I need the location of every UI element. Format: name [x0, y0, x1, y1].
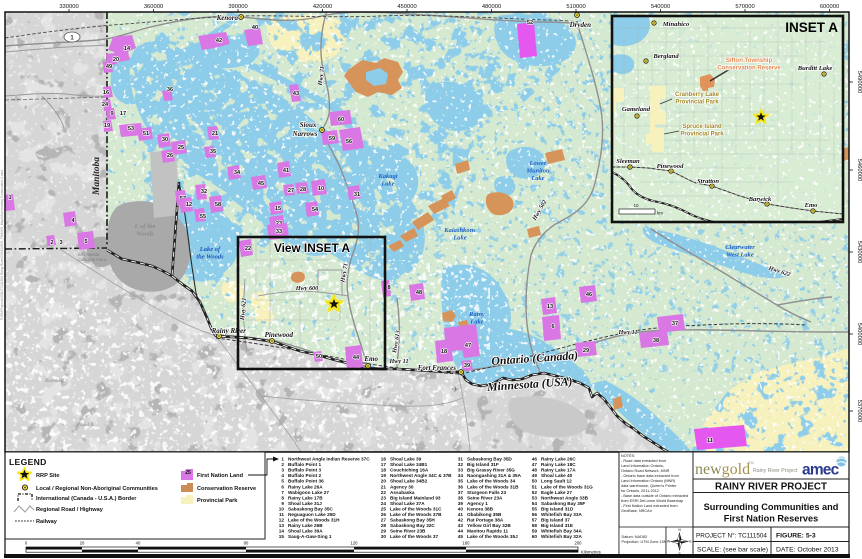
svg-text:Rainy: Rainy: [468, 311, 485, 318]
svg-text:FIGURE: 5-3: FIGURE: 5-3: [776, 533, 816, 540]
svg-text:10: 10: [633, 203, 639, 208]
svg-text:51: 51: [532, 484, 538, 489]
svg-text:33: 33: [276, 229, 282, 235]
svg-text:Lake of the Woods 37: Lake of the Woods 37: [390, 534, 438, 539]
svg-text:Land Information Ontario (MNR): Land Information Ontario (MNR): [621, 479, 676, 483]
svg-text:INSET A: INSET A: [785, 20, 838, 35]
svg-text:Long Sault 12: Long Sault 12: [541, 479, 572, 484]
svg-text:Narrows: Narrows: [292, 130, 318, 138]
svg-text:Lake of the Woods 31B: Lake of the Woods 31B: [467, 484, 519, 489]
svg-text:Provincial Park: Provincial Park: [680, 132, 724, 138]
svg-text:Big Island 31D: Big Island 31D: [541, 506, 574, 511]
svg-text:55: 55: [532, 506, 538, 511]
svg-text:Lower: Lower: [529, 160, 547, 167]
svg-text:52: 52: [527, 20, 533, 26]
svg-text:Rapid R.: Rapid R.: [76, 423, 95, 428]
svg-text:50: 50: [316, 354, 322, 360]
svg-text:42: 42: [216, 38, 222, 44]
svg-text:43: 43: [458, 523, 464, 528]
svg-text:18: 18: [441, 349, 447, 355]
svg-text:21: 21: [381, 484, 387, 489]
svg-text:Sabaskong Bay 35F: Sabaskong Bay 35F: [541, 501, 585, 506]
svg-text:12: 12: [279, 518, 285, 523]
svg-text:SCALE: (see bar scale): SCALE: (see bar scale): [697, 547, 768, 554]
svg-text:Kenora: Kenora: [216, 14, 239, 22]
svg-text:2: 2: [50, 240, 53, 246]
svg-text:5370000: 5370000: [856, 400, 862, 423]
svg-text:Couchiching 16A: Couchiching 16A: [390, 468, 429, 473]
svg-text:from ESRI DeLorme World Basema: from ESRI DeLorme World Basemap: [621, 499, 683, 503]
svg-text:Lake: Lake: [469, 319, 483, 326]
svg-text:Lake of: Lake of: [199, 246, 221, 253]
svg-text:27: 27: [381, 518, 387, 523]
svg-text:Sioux: Sioux: [300, 121, 317, 129]
svg-text:53: 53: [128, 126, 134, 132]
svg-text:Projection: UTM Zone 15N: Projection: UTM Zone 15N: [622, 540, 667, 544]
svg-text:Fort Frances: Fort Frances: [418, 364, 457, 372]
svg-text:International (Canada - U.S.A.: International (Canada - U.S.A.) Border: [36, 496, 137, 502]
svg-text:20: 20: [113, 57, 119, 63]
svg-text:20: 20: [381, 479, 387, 484]
svg-text:Hwy 600: Hwy 600: [295, 285, 319, 292]
svg-text:29: 29: [381, 529, 387, 534]
svg-text:80: 80: [244, 541, 249, 546]
svg-text:48: 48: [416, 290, 422, 296]
svg-text:First Nation Reserves: First Nation Reserves: [724, 514, 818, 524]
svg-text:33: 33: [458, 468, 464, 473]
svg-text:10: 10: [318, 186, 324, 192]
svg-text:NOTES:: NOTES:: [621, 454, 635, 458]
svg-text:39: 39: [464, 363, 470, 369]
svg-text:120: 120: [351, 541, 359, 546]
svg-text:7: 7: [281, 490, 284, 495]
svg-text:newgold: newgold: [695, 461, 750, 478]
svg-text:Rainy Lake 26C: Rainy Lake 26C: [541, 457, 576, 462]
svg-text:Assabaska: Assabaska: [390, 490, 415, 495]
svg-text:6: 6: [551, 324, 554, 330]
svg-text:Lake: Lake: [452, 235, 466, 242]
svg-text:30: 30: [381, 534, 387, 539]
svg-text:Big Island 31E: Big Island 31E: [541, 523, 573, 528]
svg-text:41: 41: [283, 168, 289, 174]
svg-text:5430000: 5430000: [856, 241, 862, 264]
svg-text:60: 60: [532, 534, 538, 539]
svg-text:Shoal Lake 40: Shoal Lake 40: [541, 473, 573, 478]
svg-text:17: 17: [381, 462, 387, 467]
svg-text:PROJECT N°: TC111504: PROJECT N°: TC111504: [696, 532, 767, 540]
svg-text:24: 24: [381, 501, 387, 506]
svg-text:59: 59: [329, 136, 335, 142]
svg-text:30: 30: [162, 137, 168, 143]
svg-text:Datum: NAD83: Datum: NAD83: [622, 535, 648, 539]
svg-text:26: 26: [381, 512, 387, 517]
svg-text:50: 50: [532, 479, 538, 484]
svg-text:Rat Portage 38A: Rat Portage 38A: [467, 518, 504, 523]
svg-text:3: 3: [59, 240, 62, 246]
svg-text:31: 31: [458, 457, 464, 462]
svg-text:Manitou: Manitou: [525, 168, 550, 175]
svg-text:Land Information Ontario,: Land Information Ontario,: [621, 464, 664, 468]
svg-text:49: 49: [532, 473, 538, 478]
svg-text:11: 11: [279, 512, 284, 517]
svg-text:21: 21: [212, 131, 218, 137]
svg-text:Naongashing 31A & 35A: Naongashing 31A & 35A: [467, 473, 522, 478]
svg-text:32: 32: [458, 462, 464, 467]
svg-text:12: 12: [186, 202, 192, 208]
svg-text:Conservation Reserve: Conservation Reserve: [197, 486, 256, 492]
svg-text:Manitou Rapids 11: Manitou Rapids 11: [467, 529, 509, 534]
svg-text:14: 14: [124, 46, 131, 52]
svg-text:10: 10: [279, 506, 285, 511]
svg-text:Northwest Angle 33B: Northwest Angle 33B: [541, 495, 589, 500]
svg-text:14: 14: [279, 529, 285, 534]
svg-text:16: 16: [103, 90, 109, 96]
svg-text:Pinewood: Pinewood: [657, 163, 684, 170]
svg-text:20: 20: [80, 541, 85, 546]
svg-text:Rainy Lake 26B: Rainy Lake 26B: [288, 523, 323, 528]
svg-text:Agency 30: Agency 30: [390, 484, 414, 489]
svg-text:25: 25: [178, 145, 184, 151]
svg-text:Lake: Lake: [380, 181, 394, 188]
svg-text:Stratton: Stratton: [697, 178, 719, 185]
svg-text:45: 45: [258, 181, 264, 187]
svg-text:Sabaskong Bay 35C: Sabaskong Bay 35C: [288, 506, 333, 511]
svg-text:32: 32: [201, 189, 207, 195]
svg-text:9: 9: [110, 111, 113, 117]
svg-text:CARLSON FIELD: CARLSON FIELD: [78, 258, 107, 262]
svg-text:Rainy Lake 17B: Rainy Lake 17B: [288, 495, 323, 500]
svg-text:47: 47: [532, 462, 538, 467]
svg-text:Buffalo Point 1: Buffalo Point 1: [288, 462, 321, 467]
svg-text:Sabaskong Bay 35H: Sabaskong Bay 35H: [390, 518, 435, 523]
svg-text:13: 13: [279, 523, 285, 528]
svg-text:56: 56: [346, 139, 352, 145]
svg-text:Barwick: Barwick: [748, 196, 772, 203]
svg-text:Cranberry Lake: Cranberry Lake: [675, 92, 720, 98]
svg-text:Northwest Angle 34C & 37B: Northwest Angle 34C & 37B: [390, 473, 452, 478]
svg-text:17: 17: [120, 111, 126, 117]
svg-text:RRP Site: RRP Site: [36, 473, 60, 479]
svg-text:Regional Road / Highway: Regional Road / Highway: [36, 507, 104, 513]
svg-text:40: 40: [252, 25, 258, 31]
svg-text:18: 18: [381, 468, 387, 473]
svg-text:42: 42: [458, 518, 464, 523]
svg-text:Surrounding Communities and: Surrounding Communities and: [704, 502, 839, 512]
svg-text:44: 44: [458, 529, 464, 534]
svg-text:160: 160: [463, 541, 471, 546]
svg-text:46: 46: [586, 292, 592, 298]
svg-text:Lake of the Woods 31H: Lake of the Woods 31H: [288, 518, 340, 523]
svg-text:5460000: 5460000: [856, 159, 862, 182]
svg-text:Kakagi: Kakagi: [377, 173, 397, 180]
svg-text:First Nation Land: First Nation Land: [197, 473, 244, 479]
svg-text:54: 54: [312, 207, 319, 213]
svg-text:Buffalo Point 3: Buffalo Point 3: [288, 468, 321, 473]
svg-text:36: 36: [167, 87, 173, 93]
svg-text:15: 15: [275, 206, 281, 212]
svg-text:19: 19: [104, 123, 110, 129]
svg-text:Whitefish Bay 33A: Whitefish Bay 33A: [541, 512, 583, 517]
svg-text:28: 28: [300, 187, 306, 193]
svg-text:22: 22: [245, 246, 251, 252]
svg-text:RAINY RIVER PROJECT: RAINY RIVER PROJECT: [715, 482, 827, 493]
svg-text:Woods: Woods: [136, 231, 154, 238]
svg-text:52: 52: [532, 490, 538, 495]
svg-text:Hwy 11: Hwy 11: [388, 358, 408, 365]
svg-text:Saug-A-Gaw-Sing 1: Saug-A-Gaw-Sing 1: [288, 534, 332, 539]
svg-text:Railway: Railway: [36, 519, 58, 525]
svg-text:Lake of the Woods 34: Lake of the Woods 34: [467, 479, 515, 484]
svg-text:19: 19: [381, 473, 387, 478]
svg-text:36: 36: [458, 484, 464, 489]
svg-text:4: 4: [281, 473, 284, 478]
svg-text:58: 58: [532, 523, 538, 528]
svg-text:15: 15: [279, 534, 285, 539]
svg-text:59: 59: [532, 529, 538, 534]
svg-text:Kaiashkons: Kaiashkons: [443, 227, 476, 234]
svg-text:Shoal Lake 34B1: Shoal Lake 34B1: [390, 462, 428, 467]
svg-text:Sifton Township: Sifton Township: [726, 58, 773, 64]
svg-text:46: 46: [532, 457, 538, 462]
svg-text:55: 55: [200, 214, 206, 220]
svg-text:60: 60: [338, 117, 344, 123]
svg-text:29: 29: [583, 348, 589, 354]
svg-text:41: 41: [458, 512, 464, 517]
svg-text:Neguaguon Lake 25D: Neguaguon Lake 25D: [288, 512, 336, 517]
svg-text:the Woods: the Woods: [196, 254, 224, 261]
svg-text:Shoal Lake 37A: Shoal Lake 37A: [390, 501, 425, 506]
svg-text:Lake: Lake: [530, 175, 544, 182]
svg-text:amec: amec: [802, 462, 840, 479]
svg-text:37: 37: [458, 490, 464, 495]
svg-text:Buffalo Point 36: Buffalo Point 36: [288, 479, 324, 484]
svg-text:Gameland: Gameland: [622, 106, 651, 113]
svg-text:25: 25: [381, 506, 387, 511]
svg-text:Emo: Emo: [363, 355, 378, 363]
svg-text:Hwy 11: Hwy 11: [617, 329, 637, 336]
svg-text:Spruce Island: Spruce Island: [682, 124, 722, 130]
svg-text:8: 8: [281, 495, 284, 500]
svg-text:Provincial Park: Provincial Park: [675, 100, 719, 106]
svg-text:47: 47: [465, 343, 471, 349]
svg-text:km: km: [657, 211, 663, 216]
svg-text:Ontario Road Network, MNR: Ontario Road Network, MNR: [621, 469, 670, 473]
svg-text:Eagle Lake 27: Eagle Lake 27: [541, 490, 572, 495]
svg-text:53: 53: [532, 495, 538, 500]
svg-text:Sleeman: Sleeman: [616, 158, 640, 165]
svg-text:56: 56: [532, 512, 538, 517]
svg-text:51: 51: [143, 131, 149, 137]
svg-text:24: 24: [102, 102, 109, 108]
svg-text:LEGEND: LEGEND: [9, 457, 47, 467]
svg-text:22: 22: [381, 490, 387, 495]
svg-text:Rainy River: Rainy River: [211, 327, 247, 335]
svg-text:L of the: L of the: [134, 223, 156, 230]
svg-text:35: 35: [210, 149, 216, 155]
svg-text:West Lake: West Lake: [726, 252, 754, 259]
svg-text:37: 37: [672, 321, 678, 327]
svg-text:1: 1: [281, 457, 284, 462]
svg-text:27: 27: [288, 188, 294, 194]
svg-text:44: 44: [353, 355, 360, 361]
svg-text:Kilometres: Kilometres: [581, 550, 601, 555]
svg-text:48: 48: [532, 468, 538, 473]
svg-text:Big Grassy River 35G: Big Grassy River 35G: [467, 468, 515, 473]
svg-text:26: 26: [167, 153, 173, 159]
svg-text:35: 35: [458, 479, 464, 484]
svg-text:Rainy River Project: Rainy River Project: [753, 468, 798, 474]
svg-text:6: 6: [281, 484, 284, 489]
svg-text:13: 13: [547, 304, 553, 310]
svg-text:Sturgeon Falls 23: Sturgeon Falls 23: [467, 490, 506, 495]
svg-text:34: 34: [458, 473, 464, 478]
svg-text:Burditt Lake: Burditt Lake: [797, 65, 833, 72]
svg-text:- Base data outside of Ontario: - Base data outside of Ontario extracted: [621, 494, 688, 498]
svg-text:39: 39: [458, 501, 464, 506]
svg-text:Obabikong 35B: Obabikong 35B: [467, 512, 502, 517]
svg-text:5490000: 5490000: [856, 71, 862, 94]
svg-text:38: 38: [653, 338, 659, 344]
svg-text:- Ontario base data extracted: - Ontario base data extracted from: [621, 474, 679, 478]
svg-text:- Road data extracted from: - Road data extracted from: [621, 459, 666, 463]
svg-text:200: 200: [575, 541, 583, 546]
svg-text:Sabaskong Bay 32C: Sabaskong Bay 32C: [390, 523, 435, 528]
svg-text:40: 40: [136, 541, 141, 546]
svg-text:Shoal Lake 31J: Shoal Lake 31J: [288, 501, 322, 506]
svg-text:1: 1: [8, 195, 11, 201]
svg-text:Kenora 38B: Kenora 38B: [467, 506, 494, 511]
svg-text:Roseau R.: Roseau R.: [44, 379, 65, 384]
svg-text:5400000: 5400000: [856, 323, 862, 346]
svg-text:Whitefish Bay 32A: Whitefish Bay 32A: [541, 534, 583, 539]
svg-text:GeoBase, NRCAn: GeoBase, NRCAn: [621, 509, 652, 513]
svg-text:Lake of the Woods 31G: Lake of the Woods 31G: [541, 484, 593, 489]
svg-text:Minahico: Minahico: [662, 21, 690, 28]
svg-text:Big Island 31F: Big Island 31F: [467, 462, 499, 467]
svg-text:for Ontario, 2011-2012: for Ontario, 2011-2012: [621, 489, 659, 493]
svg-text:View INSET A: View INSET A: [274, 241, 351, 255]
svg-text:Big Island 37: Big Island 37: [541, 518, 570, 523]
svg-text:Manitoba: Manitoba: [92, 157, 102, 196]
svg-text:Lake of the Woods 35J: Lake of the Woods 35J: [467, 534, 518, 539]
svg-text:43: 43: [293, 91, 299, 97]
svg-text:P:\EM\Projects\2011\TC111504 R: P:\EM\Projects\2011\TC111504 Rainy River…: [0, 170, 4, 320]
svg-text:25: 25: [185, 470, 191, 476]
svg-text:Seine River 23B: Seine River 23B: [390, 529, 426, 534]
svg-text:Emo: Emo: [804, 202, 819, 209]
svg-text:Pinewood: Pinewood: [265, 331, 294, 339]
svg-text:Dryden: Dryden: [569, 21, 591, 29]
svg-text:Whitefish Bay 34A: Whitefish Bay 34A: [541, 529, 583, 534]
svg-text:Lake of the Woods 37B: Lake of the Woods 37B: [390, 512, 442, 517]
svg-text:✈: ✈: [452, 385, 459, 394]
svg-text:Clearwater: Clearwater: [725, 244, 755, 251]
svg-text:INTL SWEDE: INTL SWEDE: [78, 253, 100, 257]
svg-text:8: 8: [387, 285, 390, 291]
svg-text:45: 45: [458, 534, 464, 539]
svg-text:Local / Regional Non-Aborigina: Local / Regional Non-Aboriginal Communit…: [36, 486, 158, 492]
svg-text:Lake of the Woods 31C: Lake of the Woods 31C: [390, 506, 442, 511]
svg-text:54: 54: [532, 501, 538, 506]
svg-text:Buffalo Point 2: Buffalo Point 2: [288, 473, 321, 478]
svg-text:Northwest Angle Indian Reserve: Northwest Angle Indian Reserve 37C: [288, 457, 370, 462]
svg-text:Big Island Mainland 93: Big Island Mainland 93: [390, 495, 441, 500]
svg-text:16: 16: [381, 457, 387, 462]
svg-text:Conservation Reserve: Conservation Reserve: [717, 66, 781, 72]
svg-text:Provincial Park: Provincial Park: [197, 498, 238, 504]
svg-text:58: 58: [215, 202, 221, 208]
svg-text:data warehouse, Queen's Printe: data warehouse, Queen's Printer: [621, 484, 677, 488]
svg-text:49: 49: [106, 64, 112, 70]
svg-text:57: 57: [532, 518, 538, 523]
svg-text:Shoal Lake 34B2: Shoal Lake 34B2: [390, 479, 428, 484]
svg-text:38: 38: [458, 495, 464, 500]
svg-text:5: 5: [84, 239, 87, 245]
svg-text:DATE: October 2013: DATE: October 2013: [776, 547, 839, 554]
svg-text:TM: TM: [748, 460, 754, 465]
svg-text:Yellow Girl Bay 32B: Yellow Girl Bay 32B: [467, 523, 511, 528]
svg-text:28: 28: [381, 523, 387, 528]
svg-text:40: 40: [458, 506, 464, 511]
svg-text:Rainy Lake 18C: Rainy Lake 18C: [541, 462, 576, 467]
svg-text:31: 31: [354, 192, 360, 198]
svg-text:Seine River 23A: Seine River 23A: [467, 495, 503, 500]
svg-text:Sabaskong Bay 35D: Sabaskong Bay 35D: [467, 457, 512, 462]
svg-text:Rainy Lake 17A: Rainy Lake 17A: [541, 468, 576, 473]
svg-text:- First Nation Land extracted: - First Nation Land extracted from: [621, 504, 678, 508]
svg-text:3: 3: [281, 468, 284, 473]
svg-text:11: 11: [707, 438, 713, 444]
svg-text:Shoal Lake 39A: Shoal Lake 39A: [288, 529, 323, 534]
svg-text:Rainy Lake 26A: Rainy Lake 26A: [288, 484, 323, 489]
svg-text:Shoal Lake 39: Shoal Lake 39: [390, 457, 422, 462]
svg-text:34: 34: [234, 170, 241, 176]
svg-text:Bergland: Bergland: [652, 53, 679, 60]
svg-text:Agency 1: Agency 1: [467, 501, 488, 506]
svg-text:9: 9: [281, 501, 284, 506]
svg-text:2: 2: [281, 462, 284, 467]
svg-text:Wabigoon Lake 27: Wabigoon Lake 27: [288, 490, 329, 495]
svg-text:23: 23: [381, 495, 387, 500]
svg-text:5: 5: [281, 479, 284, 484]
